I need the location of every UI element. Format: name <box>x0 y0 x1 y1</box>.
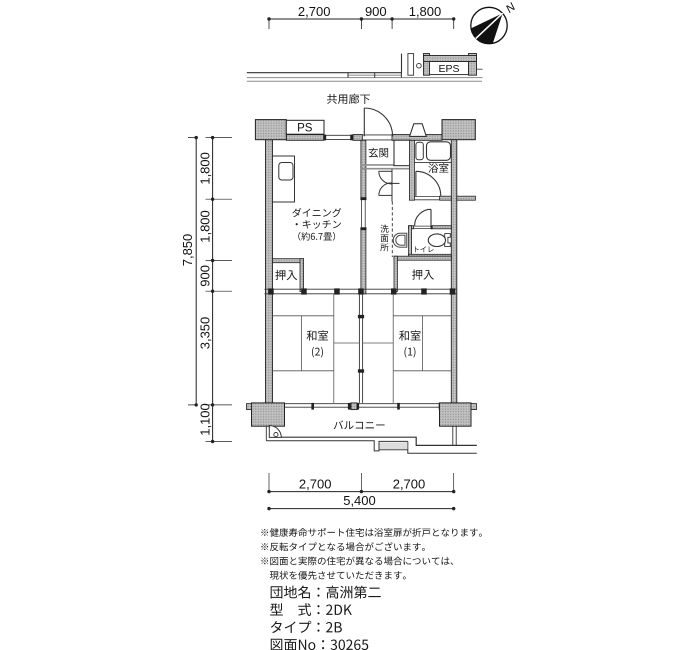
svg-text:EPS: EPS <box>438 63 459 75</box>
svg-text:7,850: 7,850 <box>180 234 195 267</box>
svg-text:2,700: 2,700 <box>299 476 332 491</box>
svg-text:900: 900 <box>198 265 213 287</box>
svg-text:1,800: 1,800 <box>409 4 442 19</box>
svg-text:2,700: 2,700 <box>393 476 426 491</box>
svg-text:1,800: 1,800 <box>198 210 213 243</box>
svg-text:3,350: 3,350 <box>198 317 213 350</box>
svg-text:1,800: 1,800 <box>198 152 213 185</box>
svg-text:PS: PS <box>297 123 313 135</box>
svg-text:1,100: 1,100 <box>198 403 213 436</box>
svg-text:2,700: 2,700 <box>298 4 331 19</box>
svg-text:900: 900 <box>365 4 387 19</box>
svg-text:5,400: 5,400 <box>343 493 376 508</box>
